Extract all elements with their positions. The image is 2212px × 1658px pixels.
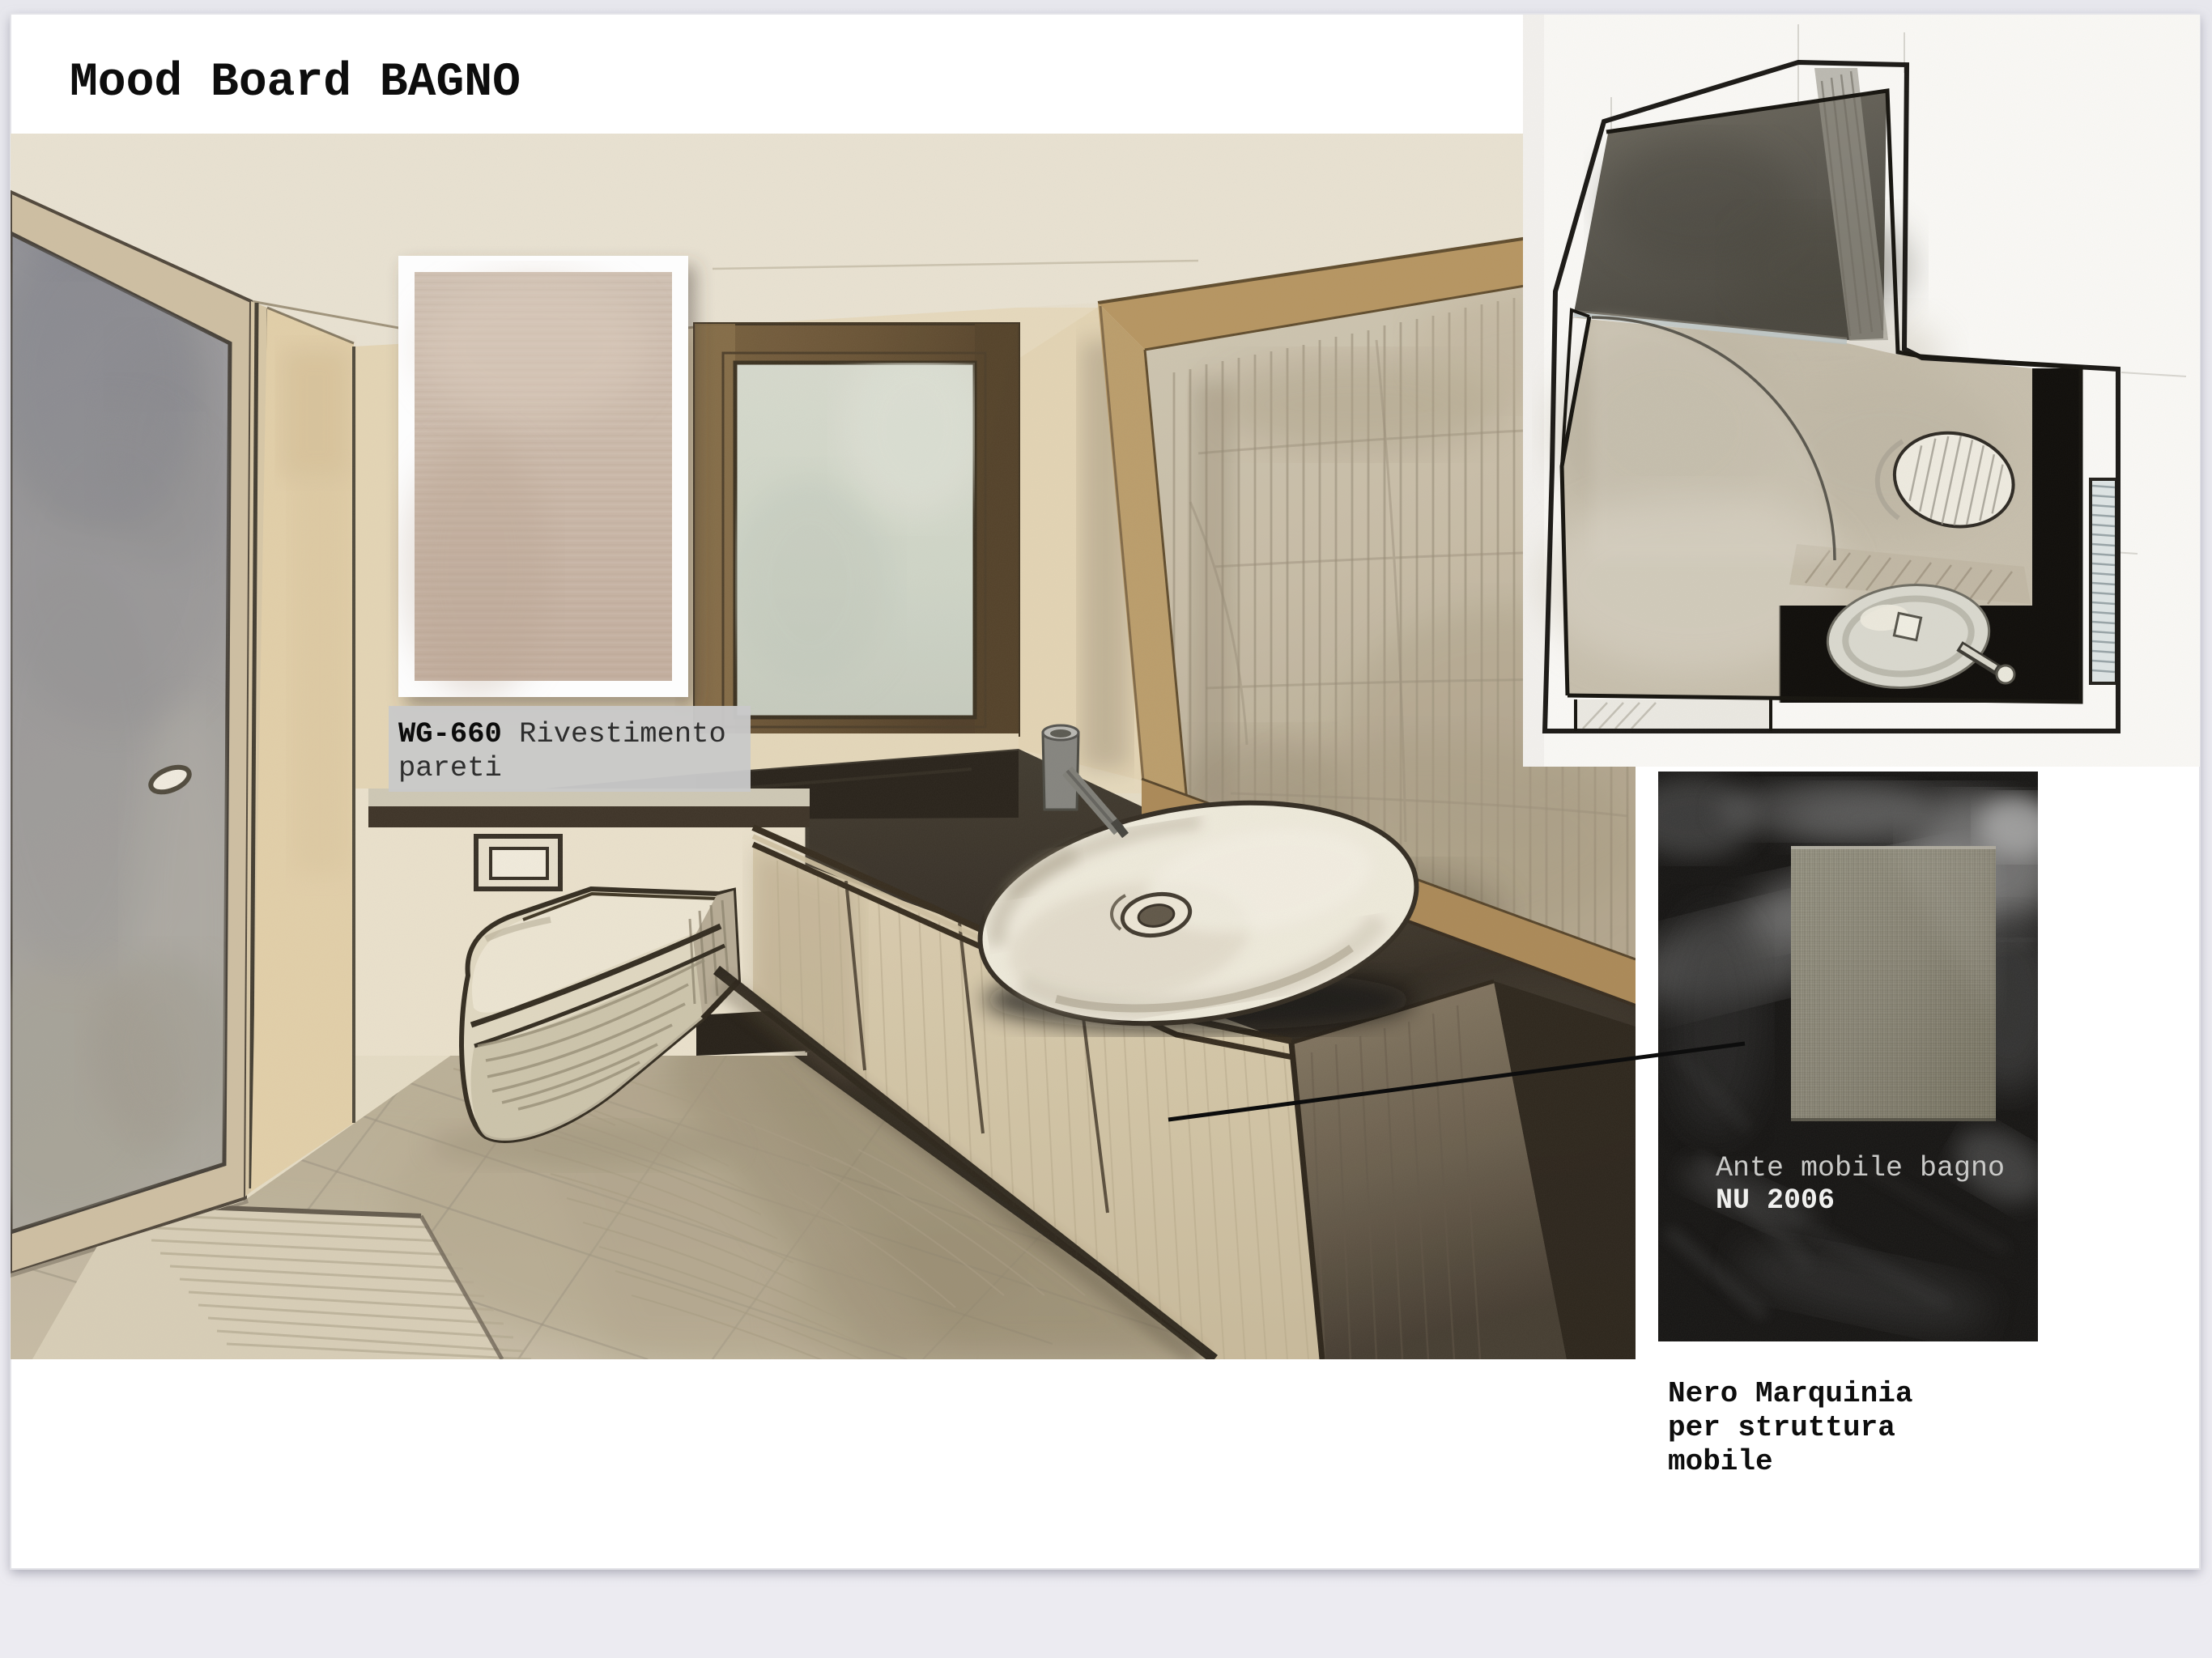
svg-text:Nero Marquinia: Nero Marquinia	[1668, 1377, 1912, 1410]
svg-text:mobile: mobile	[1668, 1445, 1773, 1478]
svg-text:per struttura: per struttura	[1668, 1411, 1895, 1444]
svg-text:NU 2006: NU 2006	[1716, 1184, 1835, 1217]
svg-text:WG-660 Rivestimento: WG-660 Rivestimento	[398, 717, 726, 750]
svg-text:pareti: pareti	[398, 751, 502, 784]
svg-text:Ante mobile bagno: Ante mobile bagno	[1716, 1152, 2005, 1184]
svg-text:Mood Board BAGNO: Mood Board BAGNO	[70, 57, 521, 109]
